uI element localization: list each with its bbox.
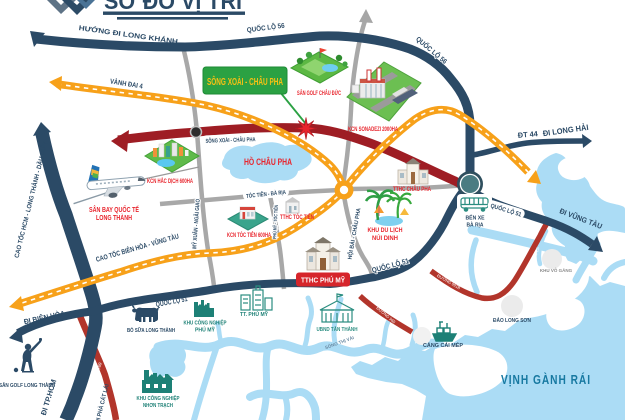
svg-text:BÀ RỊA: BÀ RỊA — [467, 222, 484, 229]
svg-text:TT. PHÚ MỸ: TT. PHÚ MỸ — [240, 311, 268, 318]
svg-text:KCN HẮC DỊCH 600HA: KCN HẮC DỊCH 600HA — [147, 177, 193, 185]
svg-text:BÒ SỮA LONG THÀNH: BÒ SỮA LONG THÀNH — [127, 326, 175, 334]
svg-text:TTHC PHÚ MỸ: TTHC PHÚ MỸ — [301, 276, 345, 285]
svg-text:KCN SONADEZI 2000HA: KCN SONADEZI 2000HA — [348, 126, 398, 133]
svg-text:SÔNG XOÀI - CHÂU PHA: SÔNG XOÀI - CHÂU PHA — [207, 75, 283, 88]
svg-text:KCN TÓC TIÊN 600HA: KCN TÓC TIÊN 600HA — [227, 230, 271, 239]
svg-text:NHƠN TRẠCH: NHƠN TRẠCH — [143, 403, 173, 409]
svg-text:SÂN GOLF LONG THÀNH: SÂN GOLF LONG THÀNH — [0, 382, 55, 389]
svg-text:KHU CÔNG NGHIỆP: KHU CÔNG NGHIỆP — [184, 319, 227, 327]
svg-text:TTHC TÓC TIÊN: TTHC TÓC TIÊN — [280, 212, 314, 221]
svg-text:UBND TÂN THÀNH: UBND TÂN THÀNH — [317, 326, 358, 333]
svg-text:KHU VÔ GĂNG: KHU VÔ GĂNG — [540, 266, 573, 273]
svg-text:HỒ CHÂU PHA: HỒ CHÂU PHA — [244, 156, 292, 167]
svg-text:PHÚ MỸ: PHÚ MỸ — [195, 327, 215, 334]
svg-text:LONG THÀNH: LONG THÀNH — [96, 213, 132, 222]
svg-text:ĐT 44: ĐT 44 — [517, 129, 539, 140]
svg-text:KHU CÔNG NGHIỆP: KHU CÔNG NGHIỆP — [137, 394, 180, 402]
svg-text:VỊNH GÀNH RÁI: VỊNH GÀNH RÁI — [501, 372, 591, 387]
svg-text:NÚI DINH: NÚI DINH — [372, 233, 398, 242]
svg-text:SÂN GOLF CHÂU ĐỨC: SÂN GOLF CHÂU ĐỨC — [297, 90, 341, 97]
svg-text:ĐẢO LONG SƠN: ĐẢO LONG SƠN — [493, 317, 531, 324]
svg-text:TTHC CHÂU PHA: TTHC CHÂU PHA — [393, 184, 431, 193]
svg-text:KHU DU LỊCH: KHU DU LỊCH — [368, 227, 403, 234]
svg-text:CẢNG CÁI MÉP: CẢNG CÁI MÉP — [423, 341, 463, 349]
svg-text:BẾN XE: BẾN XE — [466, 215, 485, 222]
